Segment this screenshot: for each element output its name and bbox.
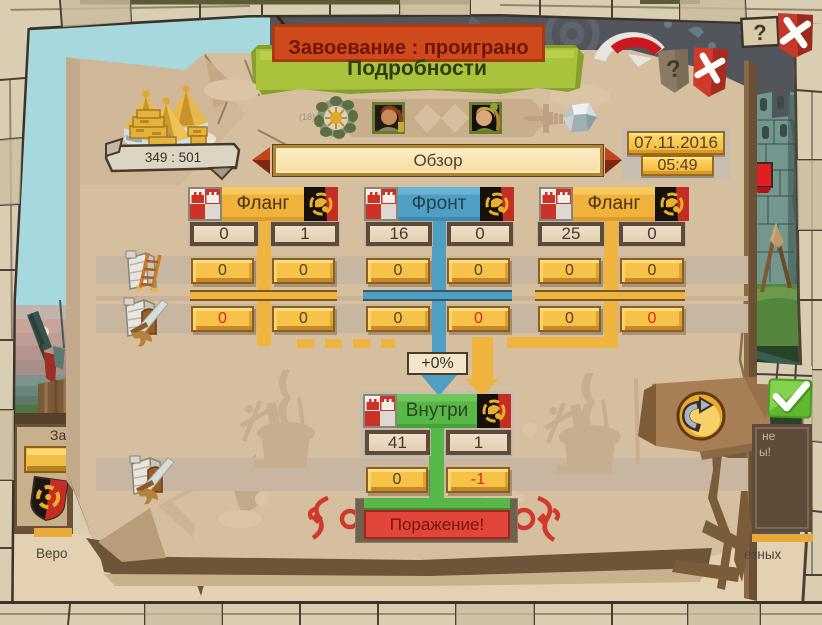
svg-text:Веро: Веро	[36, 546, 68, 561]
svg-text:За: За	[50, 427, 66, 443]
svg-text:езных: езных	[744, 547, 782, 562]
svg-text:?: ?	[753, 20, 768, 46]
svg-text:не: не	[762, 429, 776, 443]
svg-text:ы!: ы!	[759, 445, 771, 459]
svg-text:349 : 501: 349 : 501	[145, 150, 201, 165]
svg-text:(18): (18)	[299, 112, 315, 122]
